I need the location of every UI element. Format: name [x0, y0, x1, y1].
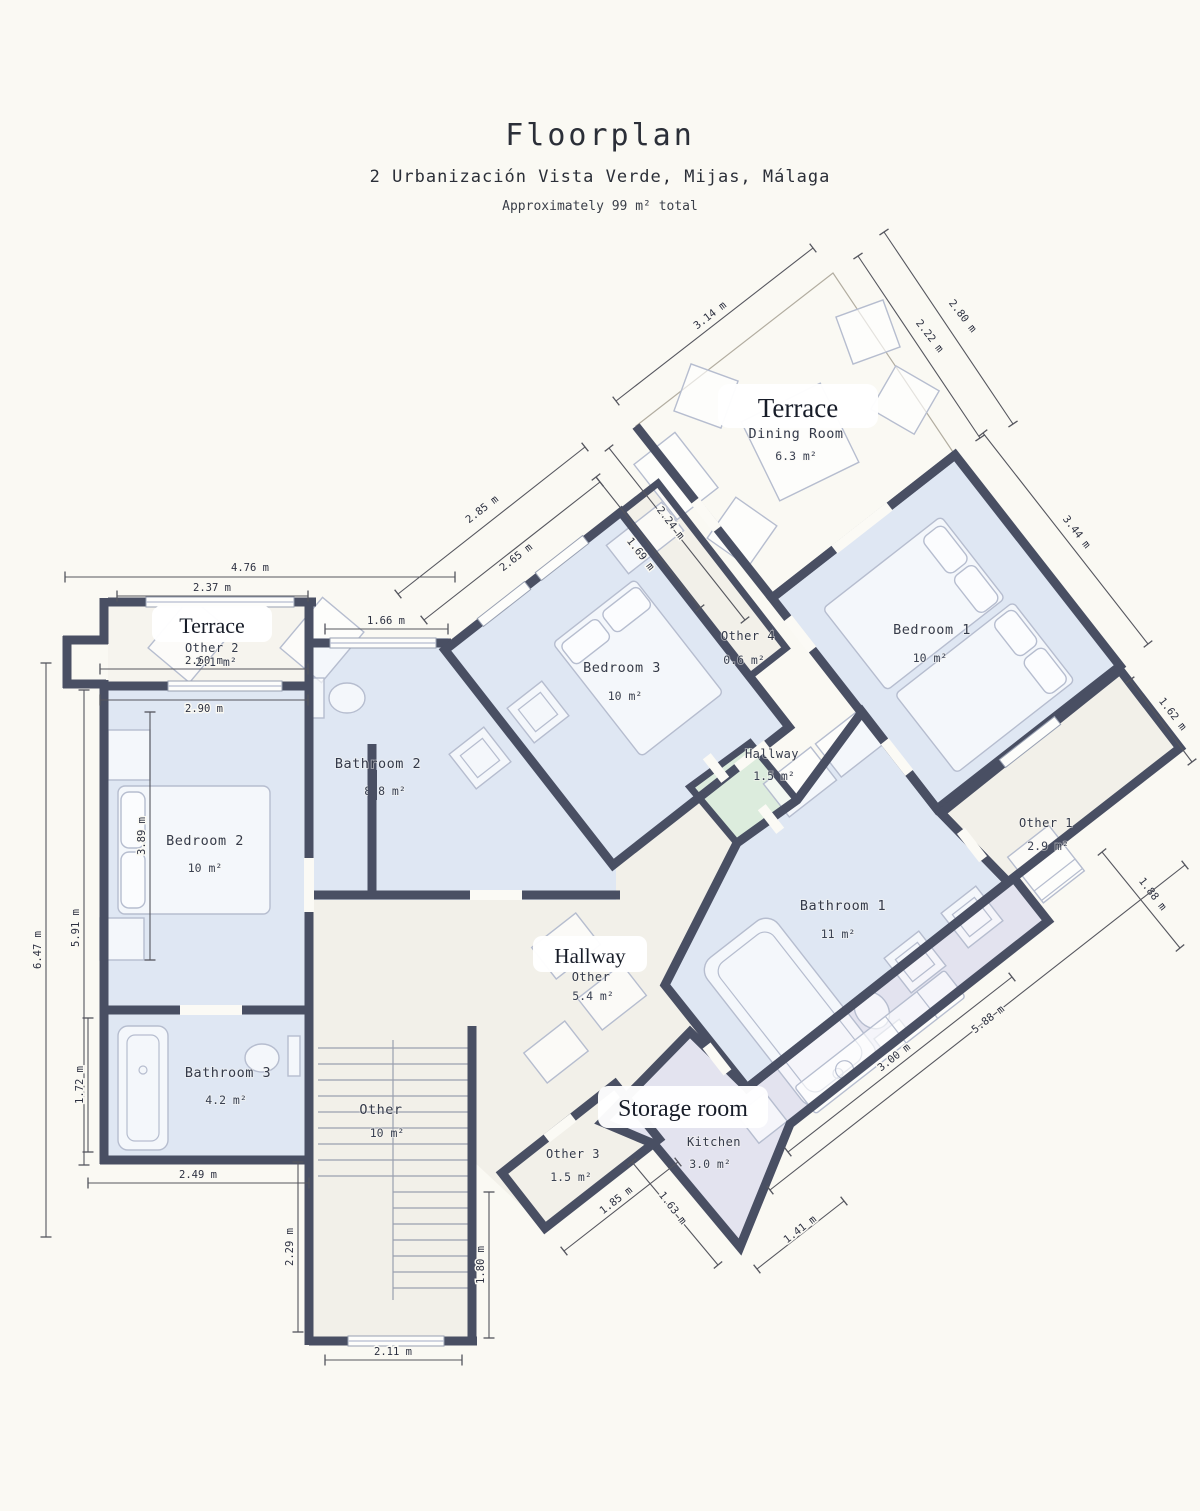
svg-text:1.41 m: 1.41 m — [782, 1213, 819, 1246]
dimension: 1.41 m — [757, 1201, 844, 1269]
room-label: Other — [572, 970, 611, 984]
room-area: 0.6 m² — [723, 653, 765, 667]
floorplan-canvas: 3.14 m 2.22 m 2.80 m 2.24 m 1.69 m 2.85 … — [0, 0, 1200, 1511]
chair-icon — [871, 366, 939, 434]
dimension: 2.29 m — [284, 1162, 298, 1332]
hallway-badge-label: Hallway — [554, 944, 626, 968]
door-opening — [180, 1005, 242, 1015]
room-label: Other — [359, 1102, 402, 1118]
svg-text:1.63 m: 1.63 m — [656, 1190, 689, 1227]
room-area: 3.0 m² — [689, 1157, 731, 1171]
room-label: Dining Room — [749, 426, 844, 442]
nightstand-icon — [108, 730, 150, 780]
svg-text:1.66 m: 1.66 m — [367, 615, 405, 627]
chair-icon — [836, 300, 900, 364]
svg-text:2.22 m: 2.22 m — [913, 318, 946, 355]
storage-badge-label: Storage room — [618, 1096, 748, 1122]
terrace-badge-label: Terrace — [179, 613, 245, 638]
svg-text:2.29 m: 2.29 m — [284, 1228, 296, 1266]
room-area: 4.2 m² — [205, 1093, 247, 1107]
room-label: Hallway — [745, 747, 799, 761]
room-area: 10 m² — [608, 689, 643, 703]
room-label: Bathroom 2 — [335, 756, 421, 772]
terrace-badge-label: Terrace — [758, 393, 839, 423]
svg-text:2.85 m: 2.85 m — [464, 493, 501, 526]
svg-text:2.80 m: 2.80 m — [946, 298, 979, 335]
svg-text:1.72 m: 1.72 m — [74, 1066, 86, 1104]
dimension: 4.76 m — [65, 562, 455, 577]
room-label: Bedroom 3 — [583, 660, 661, 676]
bathtub-icon — [118, 1026, 168, 1150]
room-label: Other 3 — [546, 1147, 600, 1161]
room-area: 11 m² — [821, 927, 856, 941]
wall-stub — [368, 770, 377, 800]
room-area: 6.3 m² — [775, 449, 817, 463]
floorplan-page: Floorplan 2 Urbanización Vista Verde, Mi… — [0, 0, 1200, 1511]
svg-text:5.91 m: 5.91 m — [70, 909, 82, 947]
svg-text:2.49 m: 2.49 m — [179, 1169, 217, 1181]
room-label: Other 4 — [721, 629, 775, 643]
room-area: 5.4 m² — [572, 989, 614, 1003]
svg-text:3.14 m: 3.14 m — [692, 299, 729, 332]
room-label: Kitchen — [687, 1135, 741, 1149]
room-area: 10 m² — [188, 861, 223, 875]
dimension: 2.37 m — [117, 582, 308, 596]
room-area: 10 m² — [913, 651, 948, 665]
room-area: 10 m² — [370, 1126, 405, 1140]
room-area: 1.5 m² — [753, 769, 795, 783]
room-label: Other 1 — [1019, 816, 1073, 830]
room-label: Bathroom 3 — [185, 1065, 271, 1081]
svg-text:5.88 m: 5.88 m — [970, 1003, 1007, 1036]
svg-text:1.80 m: 1.80 m — [475, 1246, 487, 1284]
door-opening — [304, 858, 314, 912]
room-label: Bedroom 1 — [893, 622, 971, 638]
svg-text:2.37 m: 2.37 m — [193, 582, 231, 594]
door-opening — [470, 890, 522, 900]
dimension: 2.11 m — [325, 1346, 462, 1360]
svg-text:3.44 m: 3.44 m — [1060, 514, 1093, 551]
dimension: 2.49 m — [88, 1169, 309, 1183]
dimension: 1.72 m — [74, 1018, 88, 1152]
svg-text:6.47 m: 6.47 m — [32, 931, 44, 969]
room-label: Bathroom 1 — [800, 898, 886, 914]
room-label: Other 2 — [185, 641, 239, 655]
svg-text:4.76 m: 4.76 m — [231, 562, 269, 574]
room-area: 2.9 m² — [1027, 839, 1069, 853]
svg-text:2.90 m: 2.90 m — [185, 703, 223, 715]
room-area: 1.5 m² — [550, 1170, 592, 1184]
dimension: 1.80 m — [475, 1192, 489, 1338]
dimension: 6.47 m — [32, 663, 46, 1237]
room-area: 2.1 m² — [195, 655, 237, 669]
room-label: Bedroom 2 — [166, 833, 244, 849]
svg-text:3.89 m: 3.89 m — [136, 817, 148, 855]
svg-text:2.11 m: 2.11 m — [374, 1346, 412, 1358]
